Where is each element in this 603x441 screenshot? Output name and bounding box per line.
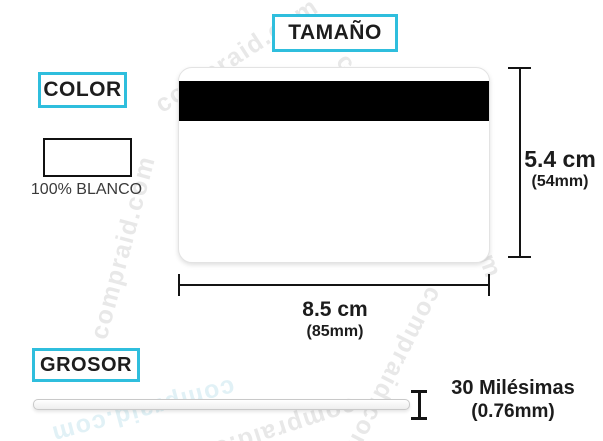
thickness-value-alt: (0.76mm) xyxy=(428,400,598,423)
height-dimension-cap-top xyxy=(508,67,531,69)
card-illustration xyxy=(178,67,490,263)
swatch-caption: 100% BLANCO xyxy=(14,181,159,199)
thickness-label-text: GROSOR xyxy=(40,354,132,377)
width-value-alt: (85mm) xyxy=(268,322,402,342)
thickness-section-label: GROSOR xyxy=(32,348,140,382)
height-dimension-cap-bottom xyxy=(508,256,531,258)
width-value: 8.5 cm xyxy=(268,297,402,322)
white-color-swatch xyxy=(43,138,132,177)
width-dimension-line xyxy=(178,284,490,286)
width-dimension-cap-left xyxy=(178,274,180,296)
size-section-label: TAMAÑO xyxy=(272,14,398,52)
thickness-value: 30 Milésimas xyxy=(428,376,598,400)
color-section-label: COLOR xyxy=(38,72,127,108)
watermark-text: compraid.com xyxy=(171,390,360,441)
height-value: 5.4 cm xyxy=(520,146,600,172)
thickness-marker-line xyxy=(418,393,421,417)
height-dimension-label: 5.4 cm (54mm) xyxy=(520,146,600,192)
spec-infographic: compraid.com compraid.com compraid.com c… xyxy=(0,0,603,441)
height-value-alt: (54mm) xyxy=(520,172,600,192)
thickness-dimension-label: 30 Milésimas (0.76mm) xyxy=(428,376,598,423)
card-edge-bar xyxy=(33,399,410,410)
color-label-text: COLOR xyxy=(43,78,121,102)
thickness-marker-icon xyxy=(411,390,427,420)
size-label-text: TAMAÑO xyxy=(288,21,382,45)
magnetic-stripe xyxy=(179,81,489,121)
width-dimension-label: 8.5 cm (85mm) xyxy=(268,297,402,342)
width-dimension-cap-right xyxy=(488,274,490,296)
